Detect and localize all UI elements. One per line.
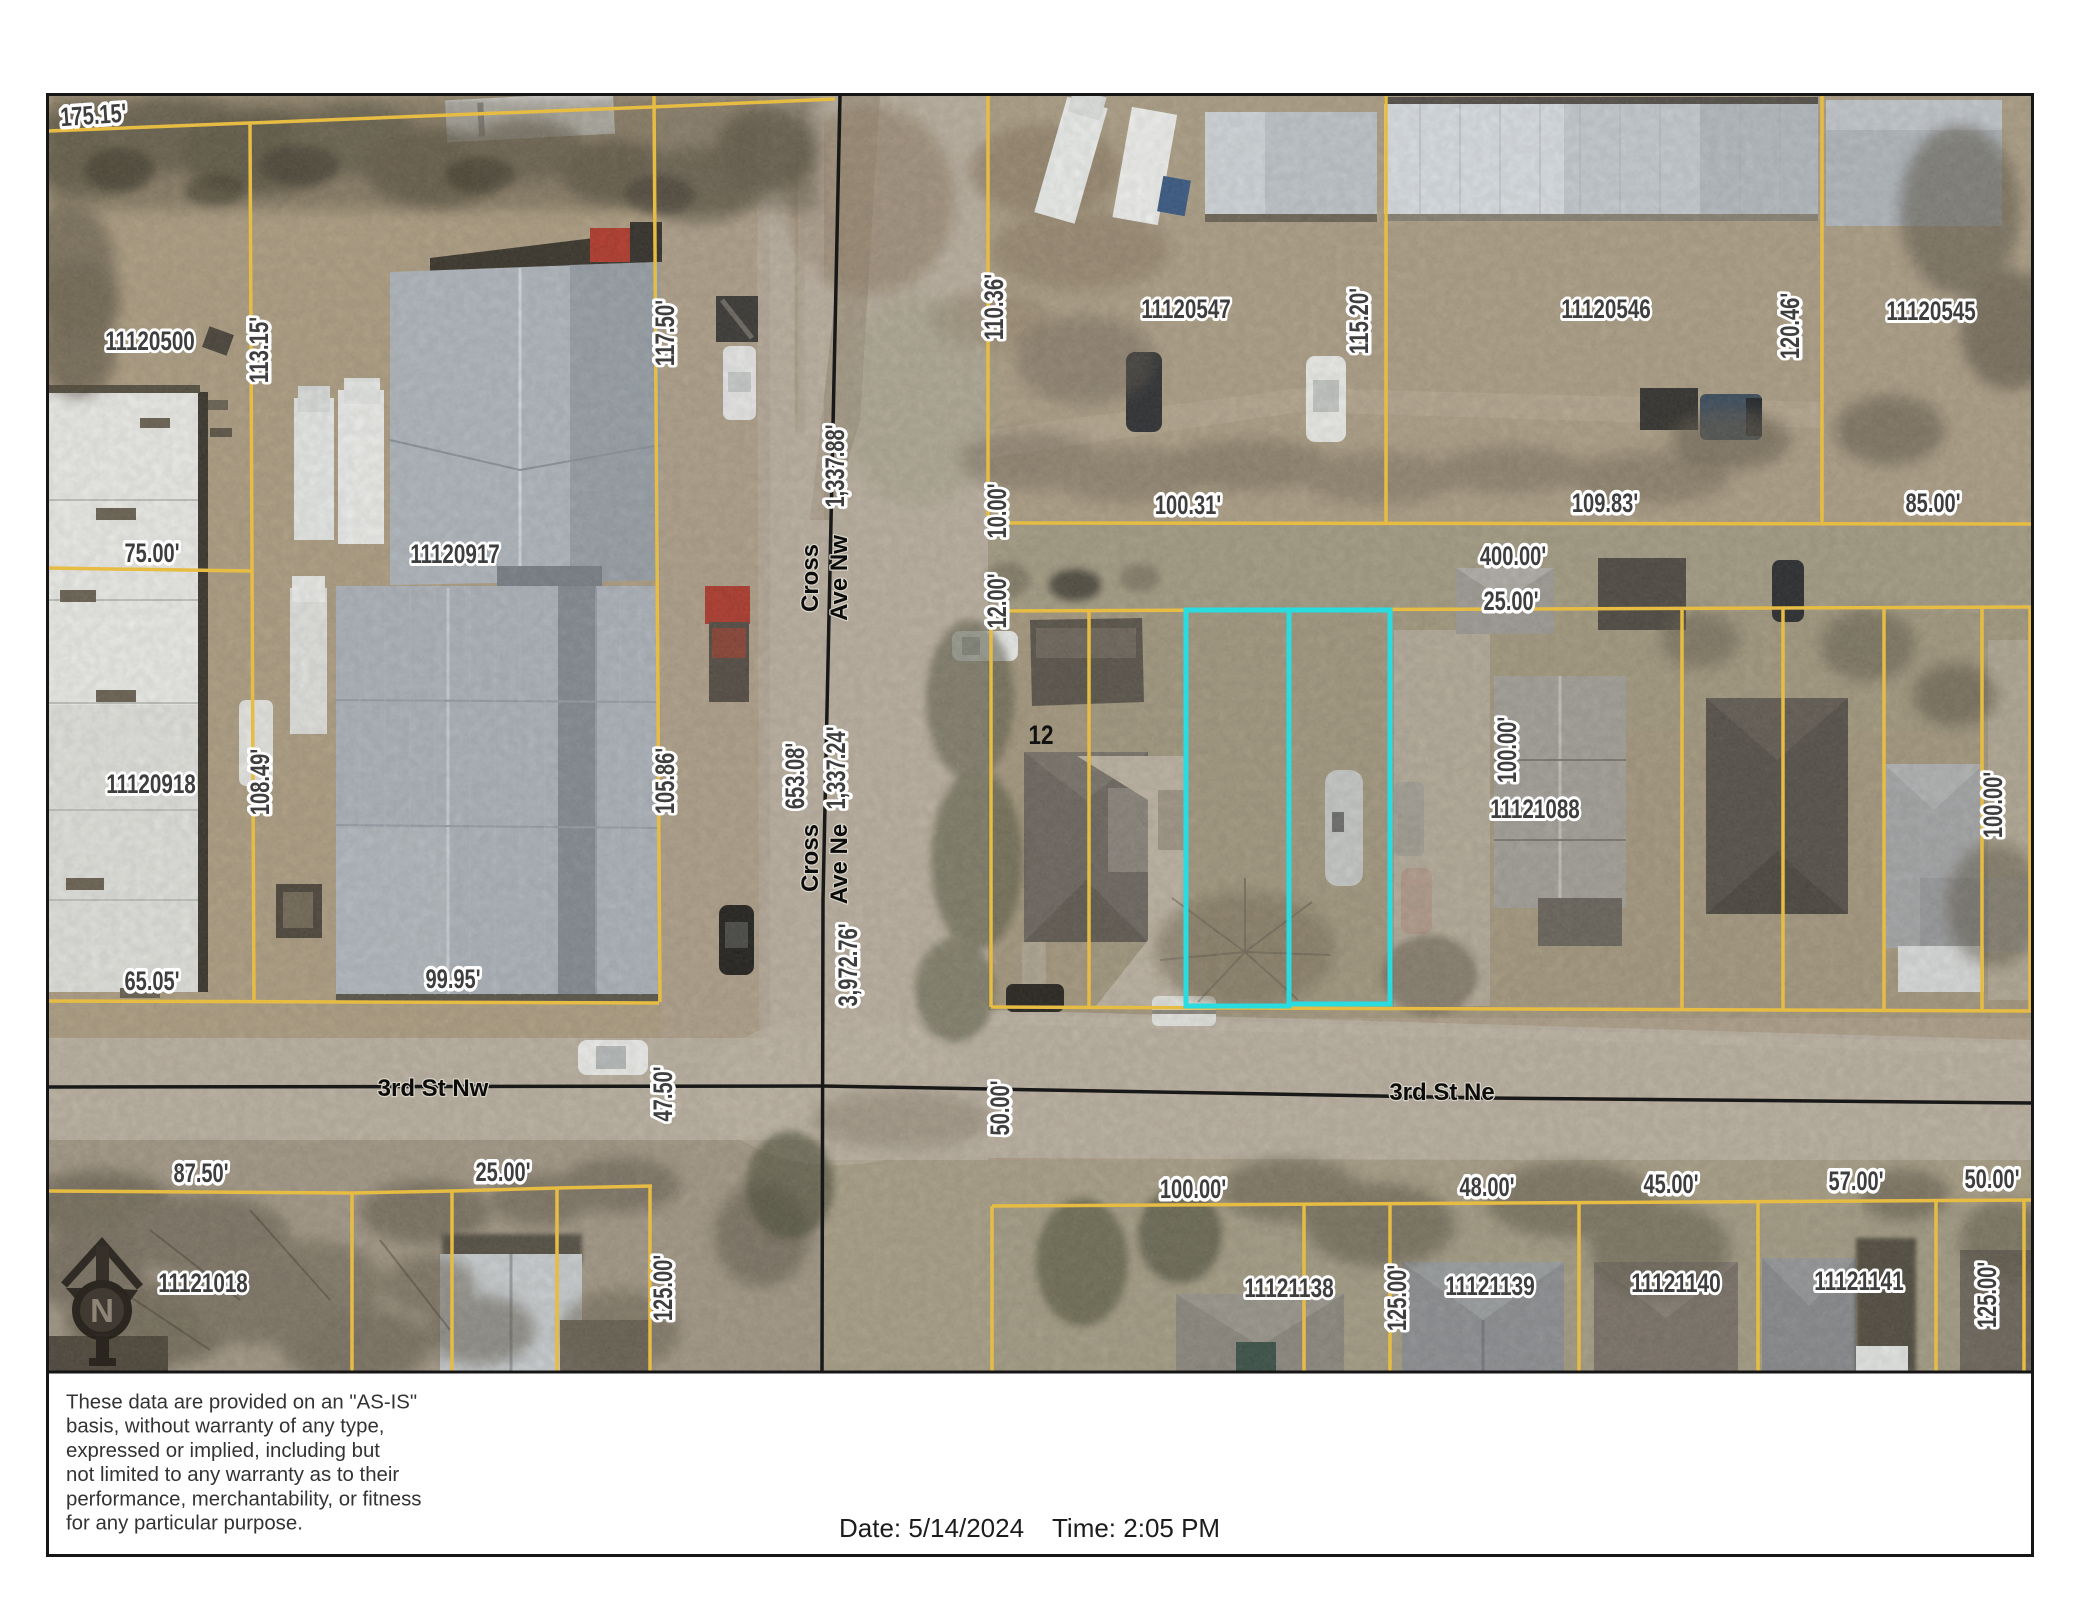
svg-text:125.00': 125.00' [648, 1255, 678, 1321]
svg-text:400.00': 400.00' [1480, 541, 1546, 571]
svg-text:3rd St Nw: 3rd St Nw [378, 1075, 489, 1102]
svg-text:for any particular purpose.: for any particular purpose. [66, 1513, 303, 1535]
svg-text:12.00': 12.00' [982, 574, 1012, 629]
svg-text:47.50': 47.50' [648, 1067, 678, 1122]
svg-text:105.86': 105.86' [650, 748, 680, 814]
svg-text:117.50': 117.50' [650, 300, 680, 366]
svg-text:85.00': 85.00' [1906, 488, 1961, 518]
svg-text:110.36': 110.36' [979, 274, 1009, 340]
svg-text:100.00': 100.00' [1492, 717, 1522, 783]
svg-text:not limited to any warranty as: not limited to any warranty as to their [66, 1464, 399, 1486]
svg-text:11120918: 11120918 [106, 769, 196, 799]
svg-text:Cross: Cross [797, 544, 824, 612]
svg-text:11121138: 11121138 [1244, 1273, 1334, 1303]
svg-text:113.15': 113.15' [244, 317, 274, 383]
svg-text:12: 12 [1029, 720, 1054, 750]
svg-text:Cross: Cross [797, 824, 824, 892]
svg-text:1,337.24': 1,337.24' [821, 727, 851, 810]
svg-text:3,972.76': 3,972.76' [833, 924, 863, 1007]
svg-text:25.00': 25.00' [1484, 586, 1539, 616]
svg-text:120.46': 120.46' [1775, 293, 1805, 359]
svg-text:109.83': 109.83' [1572, 488, 1638, 518]
svg-text:100.00': 100.00' [1978, 772, 2008, 838]
svg-text:11121139: 11121139 [1445, 1271, 1535, 1301]
svg-text:45.00': 45.00' [1644, 1169, 1699, 1199]
svg-text:25.00': 25.00' [476, 1157, 531, 1187]
svg-text:125.00': 125.00' [1972, 1262, 2002, 1328]
svg-text:Ave Nw: Ave Nw [826, 535, 853, 621]
svg-text:100.31': 100.31' [1155, 490, 1221, 520]
svg-text:11120547: 11120547 [1141, 294, 1231, 324]
svg-text:performance, merchantability,: performance, merchantability, or fitness [66, 1488, 421, 1510]
svg-text:11120545: 11120545 [1886, 296, 1976, 326]
svg-text:11121088: 11121088 [1490, 794, 1580, 824]
svg-text:Ave Ne: Ave Ne [826, 824, 853, 904]
svg-text:653.08': 653.08' [780, 743, 810, 809]
svg-text:87.50': 87.50' [174, 1158, 229, 1188]
svg-text:11120917: 11120917 [410, 539, 500, 569]
svg-text:65.05': 65.05' [125, 966, 180, 996]
svg-text:99.95': 99.95' [426, 964, 481, 994]
svg-text:115.20': 115.20' [1344, 288, 1374, 354]
svg-text:These data are provided on an: These data are provided on an "AS-IS" [66, 1392, 417, 1414]
svg-text:48.00': 48.00' [1460, 1172, 1515, 1202]
svg-text:3rd St Ne: 3rd St Ne [1389, 1079, 1494, 1106]
svg-text:11121018: 11121018 [158, 1268, 248, 1298]
svg-text:11120546: 11120546 [1561, 294, 1651, 324]
svg-text:N: N [90, 1292, 114, 1329]
svg-text:11120500: 11120500 [105, 326, 195, 356]
svg-text:Time: 2:05 PM: Time: 2:05 PM [1052, 1513, 1220, 1543]
svg-text:50.00': 50.00' [985, 1081, 1015, 1136]
svg-text:Date: 5/14/2024: Date: 5/14/2024 [839, 1513, 1024, 1543]
svg-text:100.00': 100.00' [1160, 1174, 1226, 1204]
svg-text:108.49': 108.49' [245, 749, 275, 815]
svg-text:11121141: 11121141 [1814, 1266, 1904, 1296]
svg-text:1,337.88': 1,337.88' [820, 425, 850, 508]
svg-text:10.00': 10.00' [982, 484, 1012, 539]
svg-text:11121140: 11121140 [1631, 1268, 1721, 1298]
svg-text:125.00': 125.00' [1382, 1265, 1412, 1331]
svg-text:basis, without warranty of any: basis, without warranty of any type, [66, 1416, 384, 1438]
svg-text:75.00': 75.00' [125, 538, 180, 568]
svg-text:50.00': 50.00' [1965, 1164, 2020, 1194]
svg-text:expressed or implied, includin: expressed or implied, including but [66, 1440, 380, 1462]
svg-text:175.15': 175.15' [59, 98, 127, 133]
svg-text:57.00': 57.00' [1829, 1166, 1884, 1196]
